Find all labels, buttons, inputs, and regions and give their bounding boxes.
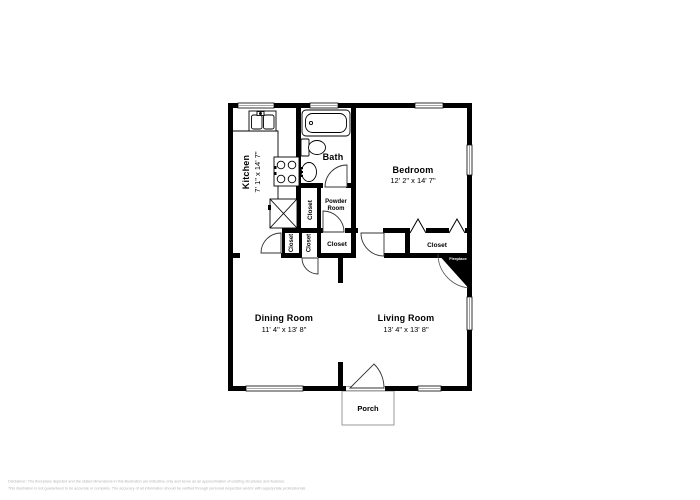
wall-outer-left [228,103,233,391]
wall-dining-top-2 [281,253,302,258]
dining-room-dims: 11' 4" x 13' 8" [262,325,307,334]
wall-dining-living-stub-bottom [338,362,343,386]
small-closet-2-label: Closet [307,234,313,252]
living-room-label: Living Room [378,313,435,323]
kitchen-label: Kitchen [241,155,251,189]
kitchen-dims: 7' 1" x 14' 7" [253,151,262,192]
wall-bath-bottom-left [301,183,323,188]
floor-plan-drawing: Kitchen 7' 1" x 14' 7" Bath Bedroom 12' … [0,0,700,500]
door-bath [325,165,347,187]
bedroom-closet-label: Closet [427,242,448,249]
wall-hallcloset-powder [317,188,321,257]
porch-label: Porch [357,404,379,413]
fireplace-label: Fireplace [449,256,467,261]
bedroom-label: Bedroom [393,165,434,175]
bedroom-dims: 12' 2" x 14' 7" [390,176,436,185]
wall-bedroom-bottom-2 [426,228,449,233]
wall-bedroom-bottom-1 [383,228,410,233]
small-closet-1-label: Closet [289,234,295,252]
floor-plan-page: Kitchen 7' 1" x 14' 7" Bath Bedroom 12' … [0,0,700,500]
dining-room-label: Dining Room [255,313,313,323]
door-closet2 [302,258,318,274]
disclaimer-line-1: Disclaimer: The floorplans depicted and … [8,480,285,484]
stove [274,157,299,186]
powder-room-label-line2: Room [328,206,345,212]
wall-dining-living-stub-top [338,258,343,283]
wall-closetrow-top-2 [345,228,358,233]
disclaimer: Disclaimer: The floorplans depicted and … [8,480,306,491]
bifold-door-left [410,219,426,233]
bifold-door-right [449,219,465,233]
door-powder-room [323,211,344,232]
door-kitchen [261,233,281,253]
wall-dining-top-3 [318,253,356,258]
wall-bath-bedroom [351,108,356,257]
living-room-dims: 13' 4" x 13' 8" [383,325,429,334]
hall-closet-label: Closet [307,199,314,220]
hallway-closet-label: Closet [327,241,348,248]
wall-bedroom-bottom-3 [465,228,472,233]
wall-closetrow-top-1 [282,228,323,233]
bathroom-sink [301,163,317,182]
powder-room-label-line1: Powder [325,199,347,205]
kitchen-sink [249,111,276,131]
disclaimer-line-2: This illustration is not guaranteed to b… [8,487,306,491]
door-porch [350,364,384,388]
bathtub [302,110,350,136]
wall-bath-bottom-right [346,183,356,188]
bath-label: Bath [323,152,344,162]
wall-dining-top-1 [228,253,240,258]
door-bedroom [361,233,384,256]
utility-box [268,199,297,228]
doors [261,165,384,388]
